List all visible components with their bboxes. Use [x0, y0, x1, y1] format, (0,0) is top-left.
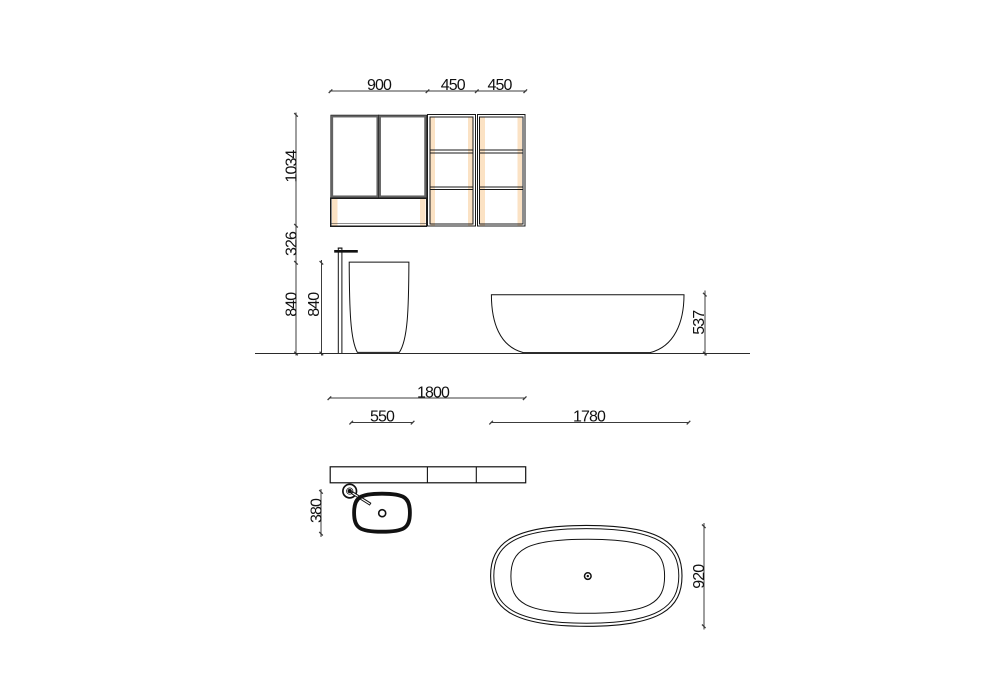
svg-text:1034: 1034 [283, 150, 300, 183]
svg-text:450: 450 [441, 77, 466, 94]
svg-text:450: 450 [488, 77, 513, 94]
svg-text:1780: 1780 [573, 409, 606, 426]
svg-text:920: 920 [691, 564, 708, 589]
svg-text:380: 380 [308, 498, 325, 523]
svg-text:1800: 1800 [417, 384, 450, 401]
svg-text:840: 840 [283, 292, 300, 317]
svg-text:537: 537 [691, 310, 708, 335]
svg-text:900: 900 [367, 77, 392, 94]
svg-text:326: 326 [283, 231, 300, 256]
svg-text:550: 550 [370, 409, 395, 426]
svg-text:840: 840 [306, 292, 323, 317]
